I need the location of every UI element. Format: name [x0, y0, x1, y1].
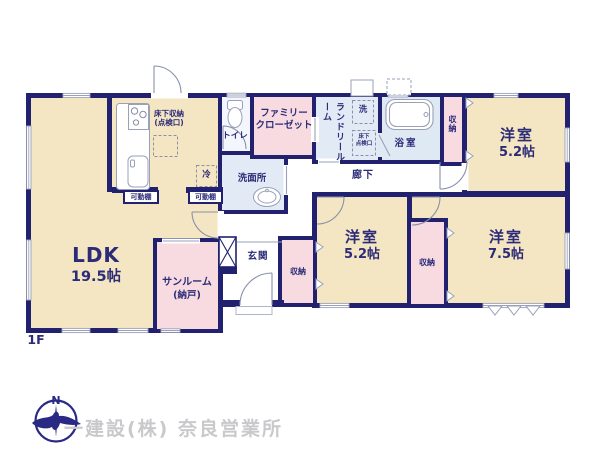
ldk-name: LDK: [71, 243, 121, 268]
bath-label: 浴室: [394, 138, 417, 149]
underfloor-storage-box: [154, 136, 178, 157]
bathtub-icon: [386, 100, 433, 130]
bedroom-top-label: 洋室 5.2帖: [499, 126, 535, 161]
closet-mid-label: 収納: [290, 267, 306, 277]
shelf-label-right: 可動棚: [188, 190, 223, 204]
floor-label: 1F: [27, 332, 44, 347]
closet-right-label: 収納: [419, 258, 435, 268]
shelf-label-left: 可動棚: [123, 190, 159, 204]
back-door: [154, 66, 181, 93]
company-name: 一建設(株) 奈良営業所: [64, 414, 283, 441]
front-door: [240, 273, 272, 305]
shoe-cabinet-icon: [219, 237, 236, 267]
plan-line-art: [0, 0, 600, 450]
ldk-label: LDK 19.5帖: [71, 243, 121, 286]
hallway-label: 廊下: [352, 170, 374, 182]
ldk-hall-door: [192, 212, 218, 238]
floor-plan-page: LDK 19.5帖 サンルーム (納戸) 洋室 5.2帖 洋室 5.2帖 洋室 …: [0, 0, 600, 450]
bedroom-mid-label: 洋室 5.2帖: [344, 228, 380, 263]
bedroom-mid-door: [317, 197, 344, 224]
washer-label: 洗: [359, 105, 368, 115]
laundry-label: ランドリールーム: [320, 102, 346, 162]
fridge-label: 冷: [202, 170, 211, 180]
kitchen-counter-icon: [117, 104, 150, 190]
underfloor-storage-label: 床下収納 (点検口): [154, 109, 184, 128]
washroom-label: 洗面所: [238, 173, 267, 184]
toilet-icon: [228, 101, 243, 128]
bedroom-right-label: 洋室 7.5帖: [488, 228, 524, 263]
entrance-label: 玄関: [247, 251, 268, 262]
family-closet-label: ファミリー クローゼット: [255, 108, 312, 132]
shutter-triangles: [488, 306, 540, 315]
outdoor-units: [351, 79, 411, 96]
sunroom-label: サンルーム (納戸): [162, 277, 212, 301]
closet-top-label: 収納: [447, 115, 458, 163]
porch-step: [236, 307, 272, 315]
toilet-label: トイレ: [222, 131, 248, 141]
underfloor-hatch-label: 床下 点検口: [356, 134, 373, 148]
washbasin-icon: [254, 188, 281, 207]
ldk-size: 19.5帖: [71, 268, 121, 286]
bedroom-right-door: [412, 197, 440, 225]
